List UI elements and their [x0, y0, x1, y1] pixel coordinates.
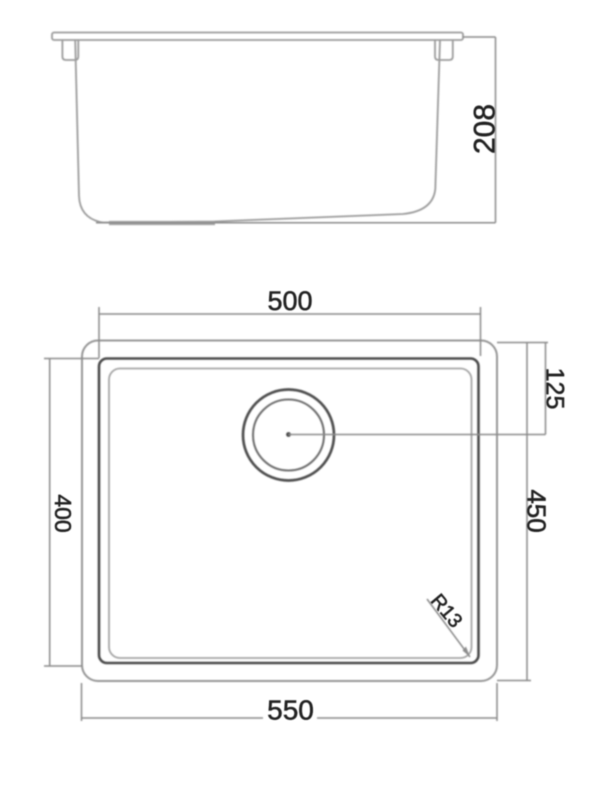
svg-text:450: 450 [522, 489, 552, 532]
svg-text:R13: R13 [426, 590, 466, 632]
svg-text:125: 125 [541, 368, 569, 410]
svg-text:500: 500 [267, 286, 312, 316]
svg-text:400: 400 [50, 494, 76, 532]
svg-text:550: 550 [267, 695, 314, 726]
svg-text:208: 208 [469, 104, 502, 154]
